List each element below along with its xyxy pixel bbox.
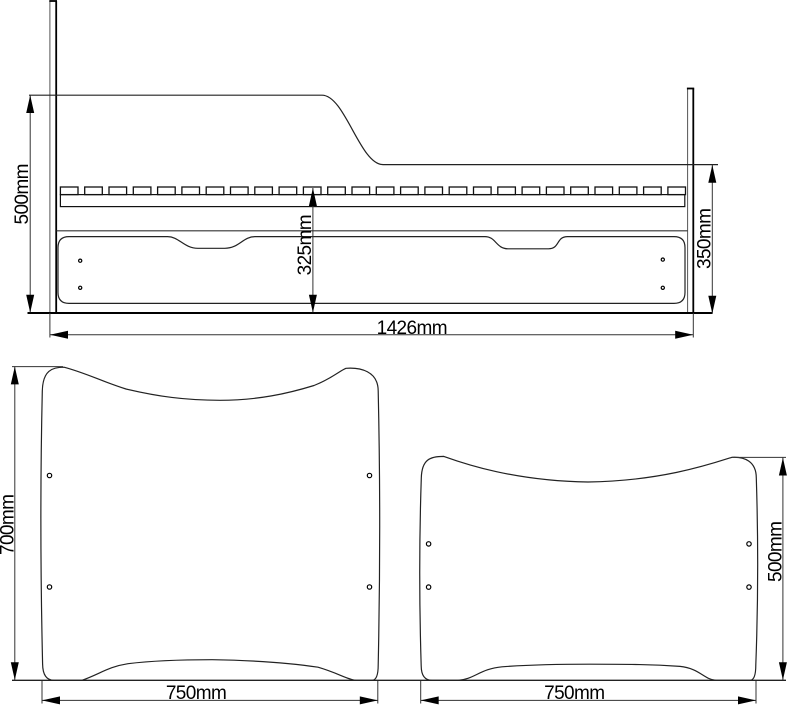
- svg-text:500mm: 500mm: [766, 522, 787, 582]
- svg-text:1426mm: 1426mm: [377, 318, 447, 339]
- svg-text:350mm: 350mm: [694, 209, 715, 269]
- svg-text:700mm: 700mm: [0, 495, 18, 555]
- svg-text:500mm: 500mm: [12, 164, 33, 224]
- svg-text:325mm: 325mm: [295, 215, 316, 275]
- svg-text:750mm: 750mm: [166, 683, 226, 704]
- svg-text:750mm: 750mm: [544, 683, 604, 704]
